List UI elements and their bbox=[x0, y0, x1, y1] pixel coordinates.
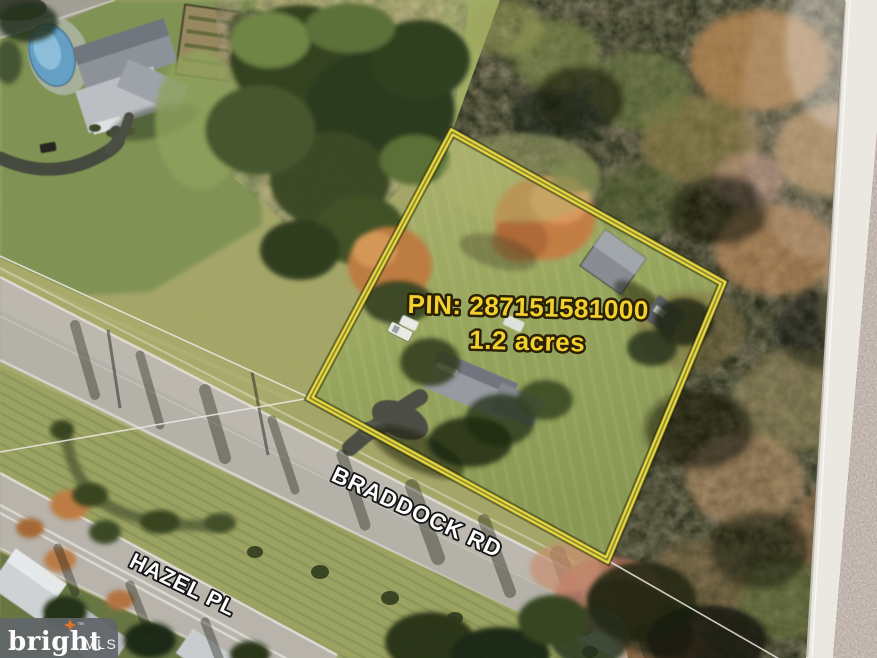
brightmls-watermark: bright ™ MLS bbox=[0, 618, 118, 658]
watermark-trademark: ™ bbox=[77, 622, 84, 629]
watermark-org: MLS bbox=[84, 636, 117, 652]
mls-aerial-listing-photo: PIN: 287151581000 1.2 acres BRADDOCK RD … bbox=[0, 0, 877, 658]
aerial-map: PIN: 287151581000 1.2 acres BRADDOCK RD … bbox=[0, 0, 877, 658]
